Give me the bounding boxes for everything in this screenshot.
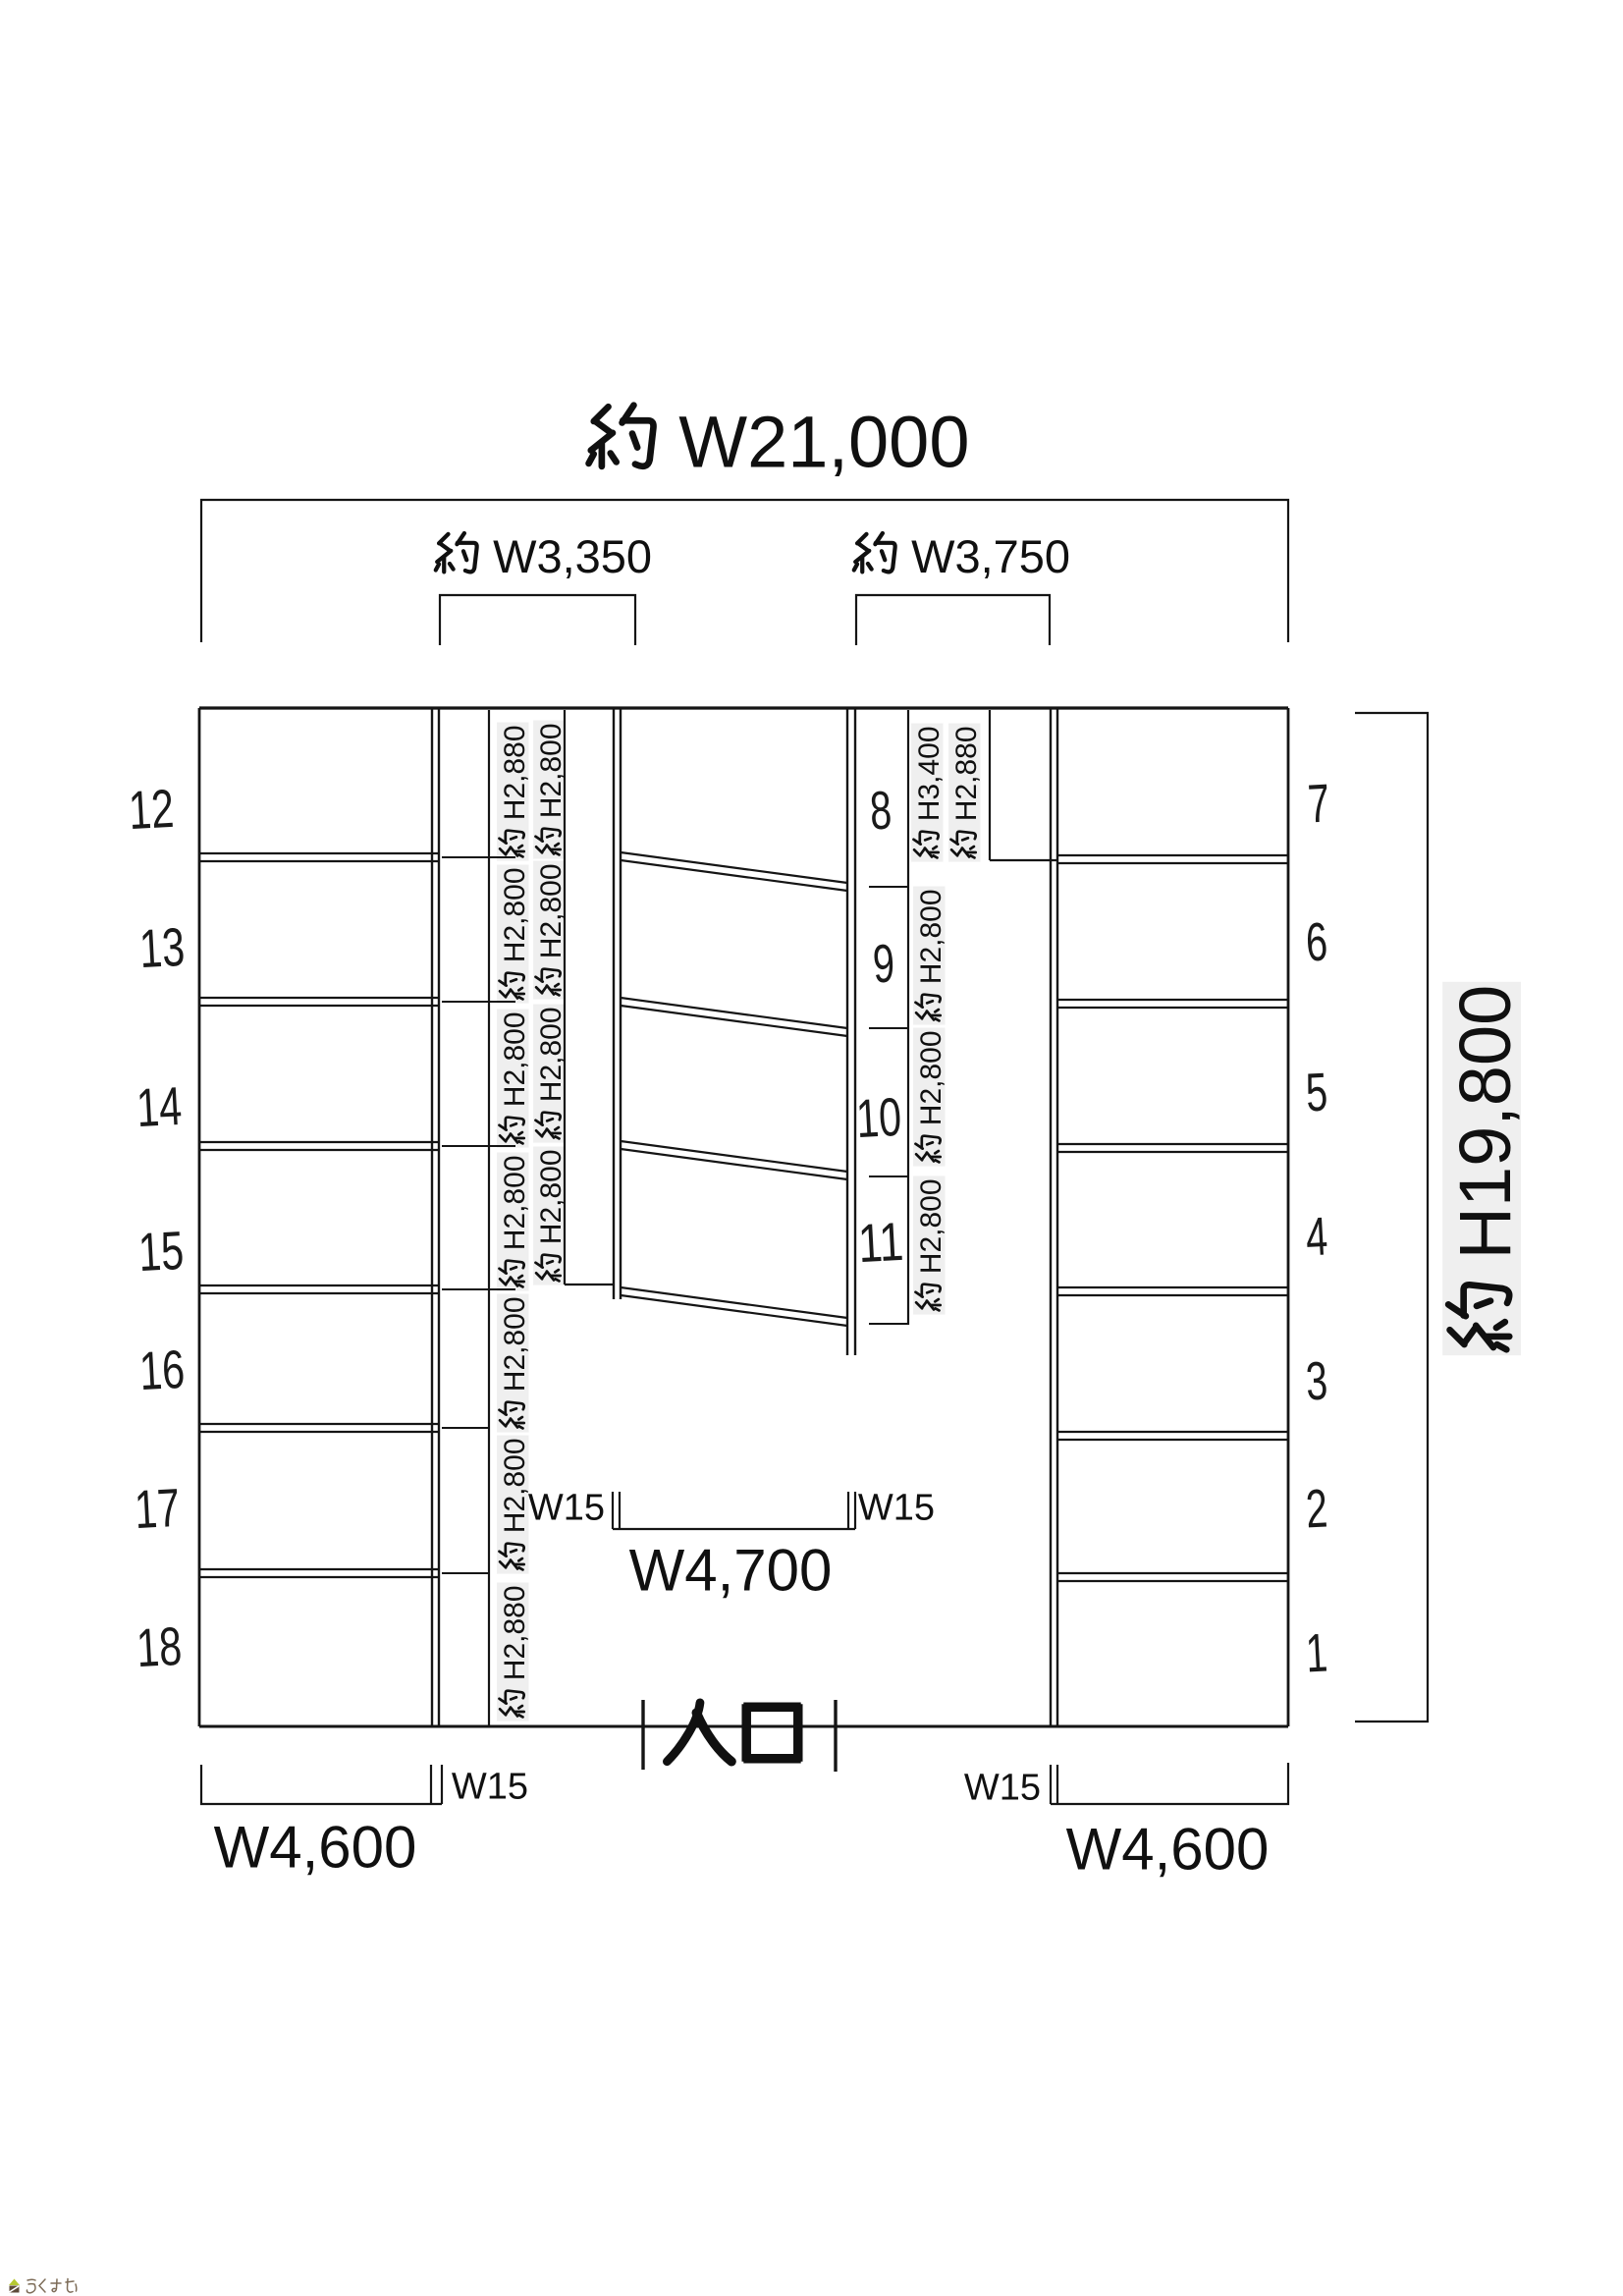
- svg-text:W15: W15: [858, 1488, 935, 1529]
- svg-text:6: 6: [1304, 910, 1328, 972]
- svg-text:H2,800: H2,800: [535, 863, 568, 958]
- svg-text:H2,800: H2,800: [535, 1149, 568, 1244]
- svg-text:H19,800: H19,800: [1444, 985, 1526, 1260]
- svg-text:15: 15: [136, 1220, 185, 1283]
- svg-text:W4,600: W4,600: [214, 1815, 417, 1881]
- svg-text:H2,800: H2,800: [535, 1007, 568, 1102]
- svg-text:W3,350: W3,350: [493, 530, 652, 582]
- svg-text:7: 7: [1306, 772, 1330, 834]
- svg-text:W4,600: W4,600: [1066, 1817, 1270, 1883]
- svg-text:H2,800: H2,800: [499, 1011, 531, 1107]
- svg-text:9: 9: [871, 932, 895, 994]
- svg-text:W21,000: W21,000: [678, 402, 969, 483]
- svg-text:16: 16: [137, 1339, 186, 1401]
- svg-text:H2,800: H2,800: [915, 1030, 947, 1125]
- svg-text:W4,700: W4,700: [629, 1538, 833, 1604]
- svg-text:13: 13: [137, 916, 186, 979]
- svg-text:W15: W15: [964, 1768, 1041, 1809]
- svg-text:H2,800: H2,800: [499, 1296, 531, 1392]
- svg-text:4: 4: [1304, 1205, 1328, 1267]
- svg-text:H2,800: H2,800: [499, 867, 531, 962]
- svg-text:H2,880: H2,880: [499, 1585, 531, 1680]
- svg-text:1: 1: [1304, 1621, 1328, 1683]
- svg-text:3: 3: [1304, 1349, 1328, 1411]
- svg-text:11: 11: [856, 1211, 904, 1274]
- svg-text:H2,800: H2,800: [499, 1155, 531, 1250]
- svg-text:H2,800: H2,800: [499, 1438, 531, 1533]
- svg-text:18: 18: [135, 1615, 183, 1678]
- svg-text:H3,400: H3,400: [913, 726, 946, 821]
- svg-text:14: 14: [135, 1075, 183, 1138]
- svg-text:2: 2: [1304, 1477, 1328, 1539]
- svg-text:12: 12: [127, 778, 175, 841]
- svg-text:W15: W15: [452, 1767, 528, 1808]
- svg-text:W15: W15: [528, 1488, 605, 1529]
- svg-text:W3,750: W3,750: [911, 530, 1070, 582]
- svg-text:H2,880: H2,880: [950, 726, 983, 821]
- svg-text:5: 5: [1304, 1061, 1328, 1122]
- svg-text:H2,800: H2,800: [915, 1178, 947, 1274]
- svg-text:8: 8: [868, 779, 893, 841]
- svg-text:H2,880: H2,880: [499, 725, 531, 820]
- svg-text:17: 17: [133, 1477, 181, 1540]
- svg-text:H2,800: H2,800: [535, 723, 568, 818]
- svg-text:10: 10: [854, 1086, 902, 1149]
- svg-text:H2,800: H2,800: [915, 889, 947, 984]
